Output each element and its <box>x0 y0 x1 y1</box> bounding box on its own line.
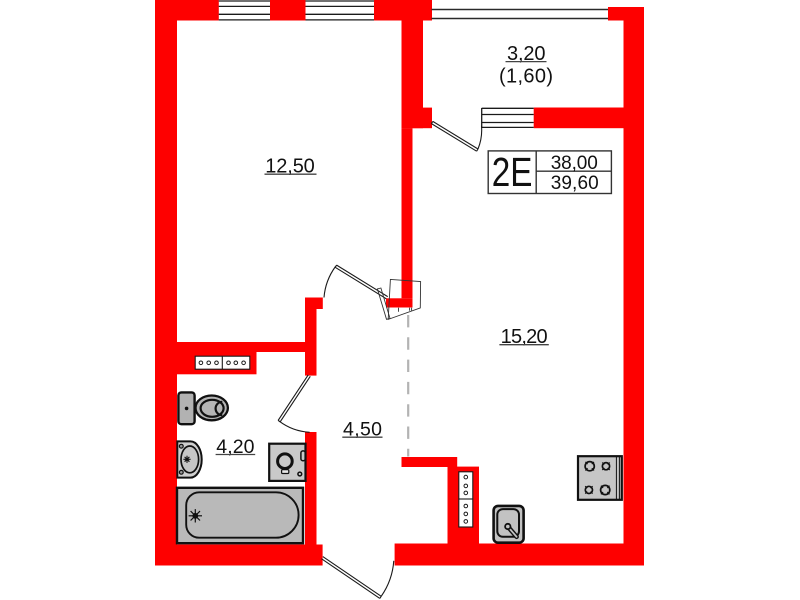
svg-text:38,00: 38,00 <box>551 153 598 174</box>
svg-text:(1,60): (1,60) <box>499 65 553 87</box>
svg-text:39,60: 39,60 <box>551 173 599 194</box>
svg-text:2E: 2E <box>492 149 533 195</box>
